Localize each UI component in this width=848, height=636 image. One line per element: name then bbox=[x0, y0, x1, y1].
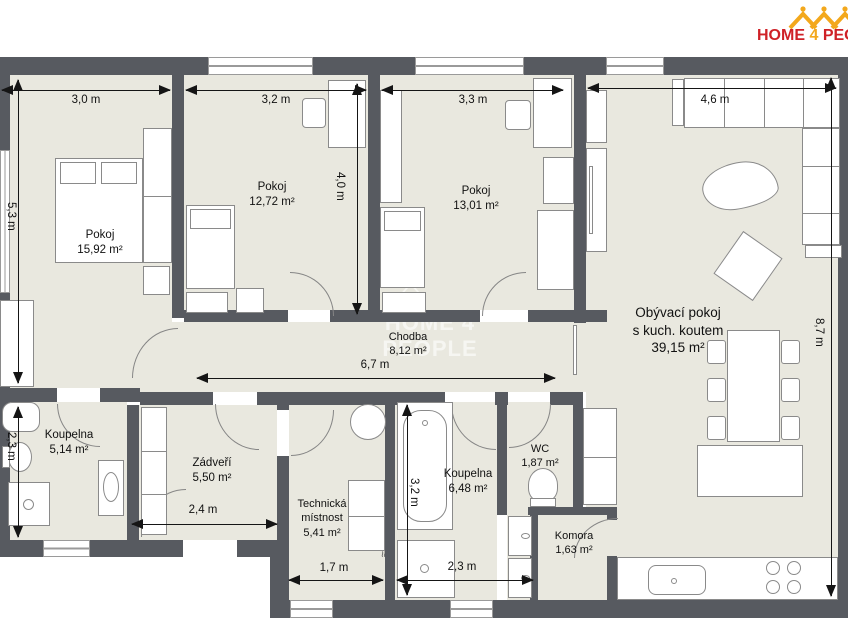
dimension-label: 8,7 m bbox=[813, 318, 825, 347]
wall bbox=[607, 556, 617, 600]
wall bbox=[90, 540, 183, 557]
bathtub-drain bbox=[422, 420, 428, 426]
wall bbox=[528, 310, 607, 322]
room-name: s kuch. koutem bbox=[633, 323, 724, 338]
chair bbox=[781, 340, 800, 364]
wall bbox=[0, 540, 43, 557]
sink-drain bbox=[671, 578, 677, 584]
room-label-komora: Komora 1,63 m² bbox=[524, 529, 624, 558]
room-label-pokoj1: Pokoj 15,92 m² bbox=[40, 228, 160, 258]
wall bbox=[493, 600, 848, 618]
brand-word-four: 4 bbox=[809, 27, 818, 44]
room-area: 1,63 m² bbox=[555, 544, 592, 556]
brand-logo: HOME 4 PEOPLE bbox=[757, 27, 848, 45]
wall bbox=[277, 405, 289, 410]
room-name: Obývací pokoj bbox=[635, 305, 721, 320]
room-name: Koupelna bbox=[45, 429, 94, 441]
wall bbox=[0, 388, 57, 402]
room-label-chodba: Chodba 8,12 m² bbox=[348, 330, 468, 359]
room-area: 39,15 m² bbox=[651, 340, 704, 355]
room-name: Pokoj bbox=[462, 185, 491, 197]
window bbox=[415, 57, 524, 75]
room-area: 5,50 m² bbox=[193, 472, 232, 484]
window bbox=[290, 600, 333, 618]
dimension-line bbox=[588, 88, 836, 89]
dimension-label: 3,3 m bbox=[423, 94, 523, 106]
room-name: Pokoj bbox=[258, 181, 287, 193]
basin bbox=[103, 472, 119, 502]
pillow bbox=[60, 162, 96, 184]
chair bbox=[781, 378, 800, 402]
dimension-label: 1,7 m bbox=[284, 562, 384, 574]
room-area: 12,72 m² bbox=[249, 196, 294, 208]
dimension-label: 2,4 m bbox=[153, 504, 253, 516]
dimension-label: 2,3 m bbox=[5, 432, 17, 461]
room-name: WC bbox=[531, 443, 549, 455]
room-label-wc: WC 1,87 m² bbox=[500, 442, 580, 471]
door-leaf bbox=[573, 325, 577, 375]
brand-word-home: HOME bbox=[757, 27, 805, 44]
room-area: 5,41 m² bbox=[303, 527, 340, 539]
wall bbox=[140, 392, 213, 405]
room-label-technicka: Technická místnost 5,41 m² bbox=[267, 497, 377, 540]
wall bbox=[528, 507, 617, 515]
room-name: Koupelna bbox=[444, 468, 493, 480]
wall bbox=[664, 57, 848, 75]
room-label-zadveri: Zádveří 5,50 m² bbox=[152, 456, 272, 486]
chair bbox=[707, 378, 726, 402]
room-name: Chodba bbox=[389, 331, 428, 343]
shelf bbox=[380, 90, 402, 203]
dimension-label: 6,7 m bbox=[325, 359, 425, 371]
chair bbox=[781, 416, 800, 440]
room-area: 13,01 m² bbox=[453, 200, 498, 212]
window bbox=[43, 540, 90, 557]
wall bbox=[574, 75, 586, 323]
cooktop-burner bbox=[766, 561, 780, 575]
dresser bbox=[236, 288, 264, 313]
room-label-koupelna2: Koupelna 6,48 m² bbox=[418, 467, 518, 497]
dimension-line bbox=[2, 90, 170, 91]
toilet-tank bbox=[530, 498, 556, 507]
dimension-label: 5,3 m bbox=[5, 202, 17, 231]
dimension-line bbox=[197, 378, 555, 379]
dimension-line bbox=[397, 580, 533, 581]
washer-drum bbox=[23, 499, 34, 510]
nightstand bbox=[143, 266, 170, 295]
pillow bbox=[190, 209, 231, 229]
room-name: Zádveří bbox=[193, 457, 232, 469]
window bbox=[208, 57, 313, 75]
room-area: 6,48 m² bbox=[449, 483, 488, 495]
wall bbox=[270, 600, 290, 618]
tv bbox=[589, 166, 593, 234]
dimension-label: 3,2 m bbox=[226, 94, 326, 106]
room-label-living: Obývací pokoj s kuch. koutem 39,15 m² bbox=[598, 304, 758, 357]
dimension-line bbox=[357, 84, 358, 314]
dimension-label: 4,0 m bbox=[334, 172, 346, 201]
dimension-line bbox=[18, 80, 19, 383]
dimension-label: 2,3 m bbox=[412, 561, 512, 573]
dimension-line bbox=[186, 90, 366, 91]
dimension-line bbox=[831, 78, 832, 596]
room-label-pokoj2: Pokoj 12,72 m² bbox=[212, 180, 332, 210]
brand-word-people: PEOPLE bbox=[823, 27, 848, 44]
room-name: Pokoj bbox=[86, 229, 115, 241]
cabinet bbox=[543, 157, 574, 204]
room-area: 8,12 m² bbox=[389, 345, 426, 357]
window bbox=[606, 57, 664, 75]
room-name: Technická bbox=[298, 498, 347, 510]
dresser bbox=[382, 292, 426, 313]
dresser bbox=[186, 292, 228, 313]
toilet bbox=[528, 468, 558, 502]
cooktop-burner bbox=[787, 580, 801, 594]
window bbox=[450, 600, 493, 618]
pillow bbox=[101, 162, 137, 184]
room-area: 15,92 m² bbox=[77, 244, 122, 256]
kitchen-island bbox=[697, 445, 803, 497]
sofa-chaise bbox=[802, 128, 840, 245]
dimension-label: 3,0 m bbox=[36, 94, 136, 106]
dimension-label: 4,6 m bbox=[665, 94, 765, 106]
room-name: místnost bbox=[301, 512, 343, 524]
pillow bbox=[384, 211, 421, 231]
dimension-line bbox=[382, 90, 563, 91]
wall bbox=[524, 57, 606, 75]
kitchen-sink bbox=[648, 565, 706, 595]
room-name: Komora bbox=[555, 530, 594, 542]
room-area: 5,14 m² bbox=[50, 444, 89, 456]
boiler bbox=[350, 404, 386, 440]
wall bbox=[385, 405, 395, 600]
ottoman bbox=[805, 245, 842, 258]
wall bbox=[333, 600, 450, 618]
wall bbox=[368, 75, 380, 322]
chair bbox=[707, 416, 726, 440]
wall bbox=[100, 388, 140, 402]
tv-cabinet bbox=[586, 90, 607, 143]
dimension-line bbox=[132, 524, 277, 525]
wall bbox=[313, 57, 415, 75]
cooktop-burner bbox=[787, 561, 801, 575]
dimension-line bbox=[18, 407, 19, 537]
cabinet bbox=[537, 210, 574, 290]
floor-plan: ⌂ HOME 4 PEOPLE bbox=[0, 0, 848, 636]
cooktop-burner bbox=[766, 580, 780, 594]
room-label-koupelna1: Koupelna 5,14 m² bbox=[19, 428, 119, 458]
room-label-pokoj3: Pokoj 13,01 m² bbox=[416, 184, 536, 214]
wardrobe bbox=[583, 408, 617, 505]
dimension-line bbox=[289, 580, 383, 581]
drain-symbol: ≈ bbox=[377, 551, 389, 557]
wall bbox=[172, 75, 184, 318]
wall bbox=[0, 57, 208, 75]
room-area: 1,87 m² bbox=[521, 457, 558, 469]
